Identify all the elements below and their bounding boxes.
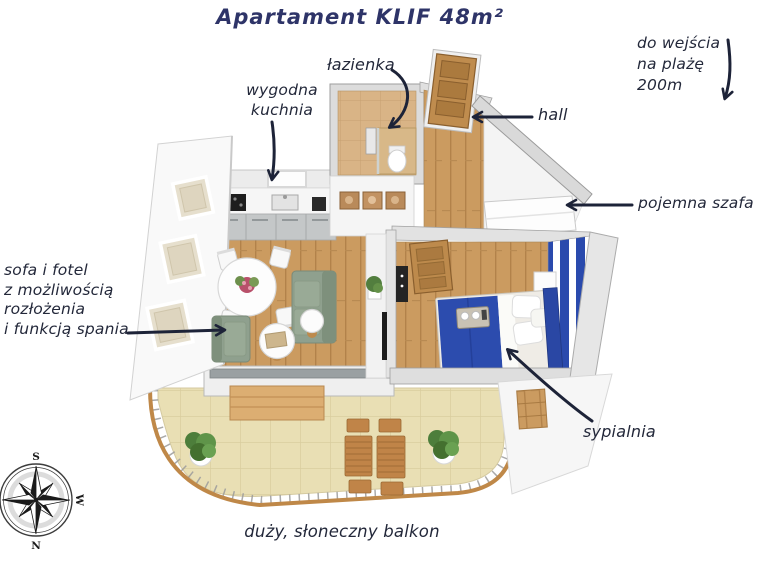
beach-note-line: do wejścia [637,33,720,54]
balcony-label: duży, słoneczny balkon [242,522,442,542]
beach-note: do wejścia na plażę 200m [637,33,720,96]
sliding-door-frame [210,369,392,378]
compass-rose: S N W E [0,451,85,552]
bedroom-dresser [396,266,408,302]
bathroom [330,84,424,236]
compass-letter-west: W [73,493,85,506]
kitchen-label: wygodna kuchnia [238,81,326,120]
coffee-table-small [301,310,324,333]
page-title: Apartament KLIF 48m² [170,5,550,29]
bedroom-label: sypialnia [583,422,656,442]
armchair [212,316,250,362]
wall-recess [173,177,214,219]
bathroom-label: łazienka [327,55,395,75]
sofa-label-line: rozłożenia [4,300,129,320]
tv [382,312,387,360]
beach-arrow [725,40,730,98]
sofa-label: sofa i fotel z możliwością rozłożenia i … [4,261,129,339]
dining-chair [269,247,291,269]
kitchen-label-line: wygodna [238,81,326,101]
bedroom-left-wall [386,230,396,378]
beach-note-line: na plażę [637,54,720,75]
floorplan-poster: S N W E Apartament KLIF 48m² do wejścia … [0,0,758,562]
hall-label: hall [538,105,568,125]
wall-recess [160,236,204,283]
kitchen-arrow [272,122,274,179]
bedroom-window-opening [517,389,548,429]
compass-letter-south: S [32,451,40,463]
bedroom-door [410,240,453,294]
bathroom-partition [366,128,376,154]
cooktop [230,194,246,211]
kitchen-label-line: kuchnia [238,101,326,121]
sofa-label-line: z możliwością [4,281,129,301]
sofa-label-line: i funkcją spania [4,320,129,340]
book [265,332,287,349]
compass-letter-north: N [31,540,41,552]
hall [420,49,492,234]
coffee-machine [312,197,326,211]
entrance-door [424,49,481,132]
wall-art-brown [340,192,405,209]
toilet [388,150,406,172]
balcony-steps [230,386,324,420]
sofa-label-line: sofa i fotel [4,261,129,281]
bed [435,288,562,378]
wardrobe-label: pojemna szafa [638,194,754,214]
wall-recess [147,301,193,350]
kitchen-counter [216,188,336,240]
breakfast-tray [456,306,489,328]
beach-note-line: 200m [637,75,720,96]
balcony [150,388,513,505]
